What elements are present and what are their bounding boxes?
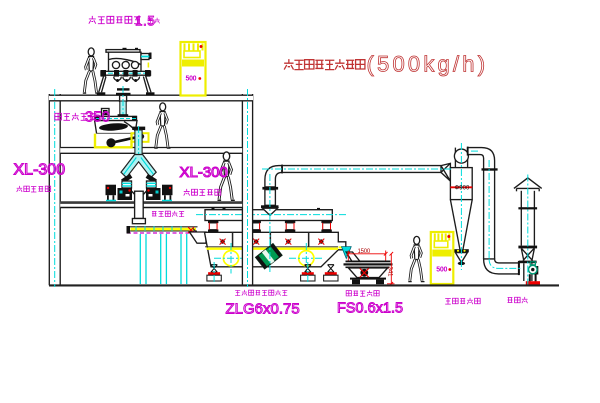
svg-text:XL-300: XL-300	[180, 164, 228, 181]
svg-text:(500kg/h): (500kg/h)	[367, 52, 489, 77]
svg-text:XL-300: XL-300	[14, 162, 66, 179]
svg-text:1500: 1500	[358, 249, 371, 255]
svg-text:1.5: 1.5	[135, 14, 155, 29]
svg-text:ZLG6x0.75: ZLG6x0.75	[226, 301, 300, 318]
svg-text:350: 350	[85, 109, 110, 126]
svg-text:Φ900: Φ900	[455, 185, 470, 191]
svg-text:FS0.6x1.5: FS0.6x1.5	[337, 301, 403, 317]
svg-text:500: 500	[436, 267, 447, 274]
svg-text:500: 500	[186, 76, 197, 83]
svg-text:341: 341	[386, 267, 392, 278]
